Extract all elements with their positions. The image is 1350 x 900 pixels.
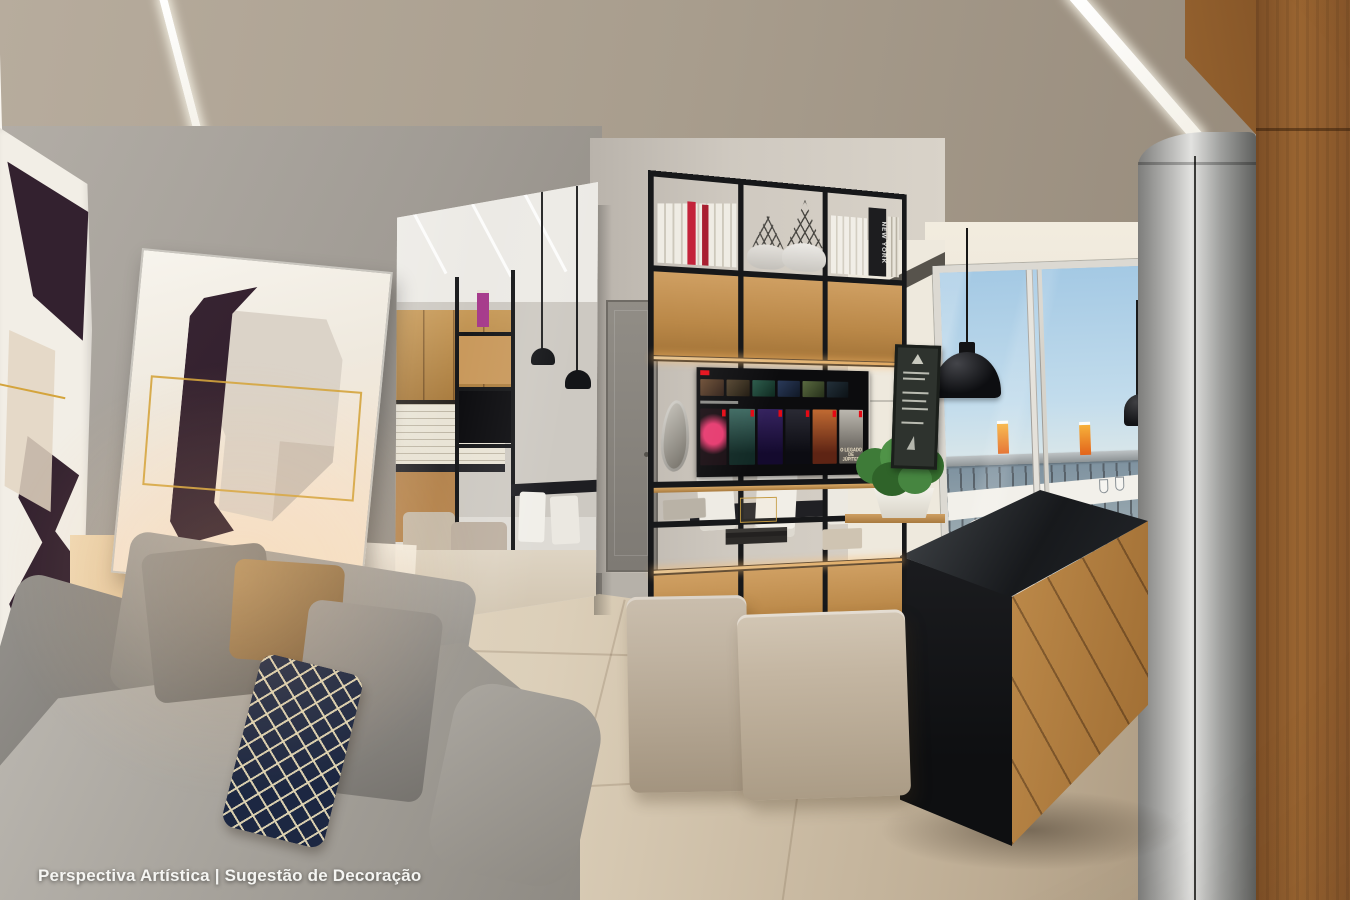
silver-leaf-vase (659, 399, 690, 472)
sign-text-line (902, 408, 928, 410)
foreground-wood-panel (1256, 0, 1350, 900)
island-front-panel (900, 556, 1012, 846)
white-books (831, 215, 867, 275)
wood-panel-seam (1256, 128, 1350, 131)
render-caption: Perspectiva Artística | Sugestão de Deco… (38, 866, 422, 886)
pouf-right (737, 609, 911, 801)
wire-decor-vase (785, 198, 824, 248)
decor-box (663, 498, 706, 520)
fridge-top-seam (1138, 162, 1256, 165)
red-book (702, 205, 708, 266)
menu-sign-board (891, 344, 941, 470)
pendant-cord (966, 228, 968, 350)
sign-text-line (903, 372, 929, 374)
sign-text-line (902, 400, 926, 402)
sign-text-line (903, 378, 925, 380)
pouf-left (626, 595, 749, 793)
decor-box (823, 528, 862, 550)
apartment-render: NEW YORK (0, 0, 1350, 900)
mirror-sheen (393, 182, 598, 627)
wood-grain (1256, 0, 1350, 900)
sign-leaf-graphic (912, 354, 924, 364)
white-books (888, 216, 899, 277)
tv-screen: O LEGADO DE JÚPITER (697, 367, 871, 477)
refrigerator (1138, 132, 1256, 900)
door-panel (614, 310, 648, 556)
shelf-wood-box (743, 277, 822, 360)
sign-text-line (902, 392, 928, 394)
black-book-new-york: NEW YORK (869, 207, 887, 276)
shelf-wood-box (828, 281, 902, 362)
art-gold-rectangle (142, 376, 362, 503)
book-stack (726, 527, 787, 545)
sign-leaf-graphic (907, 436, 921, 450)
tv-glare (697, 367, 869, 477)
gold-wire-box (740, 497, 777, 523)
shelf-wood-box (654, 271, 738, 357)
book-row (657, 197, 736, 268)
leaning-mirror (393, 182, 598, 627)
fridge-door-seam (1194, 156, 1196, 900)
red-book (687, 201, 695, 265)
book-spine-text: NEW YORK (869, 207, 887, 276)
sign-text-line (901, 422, 923, 424)
